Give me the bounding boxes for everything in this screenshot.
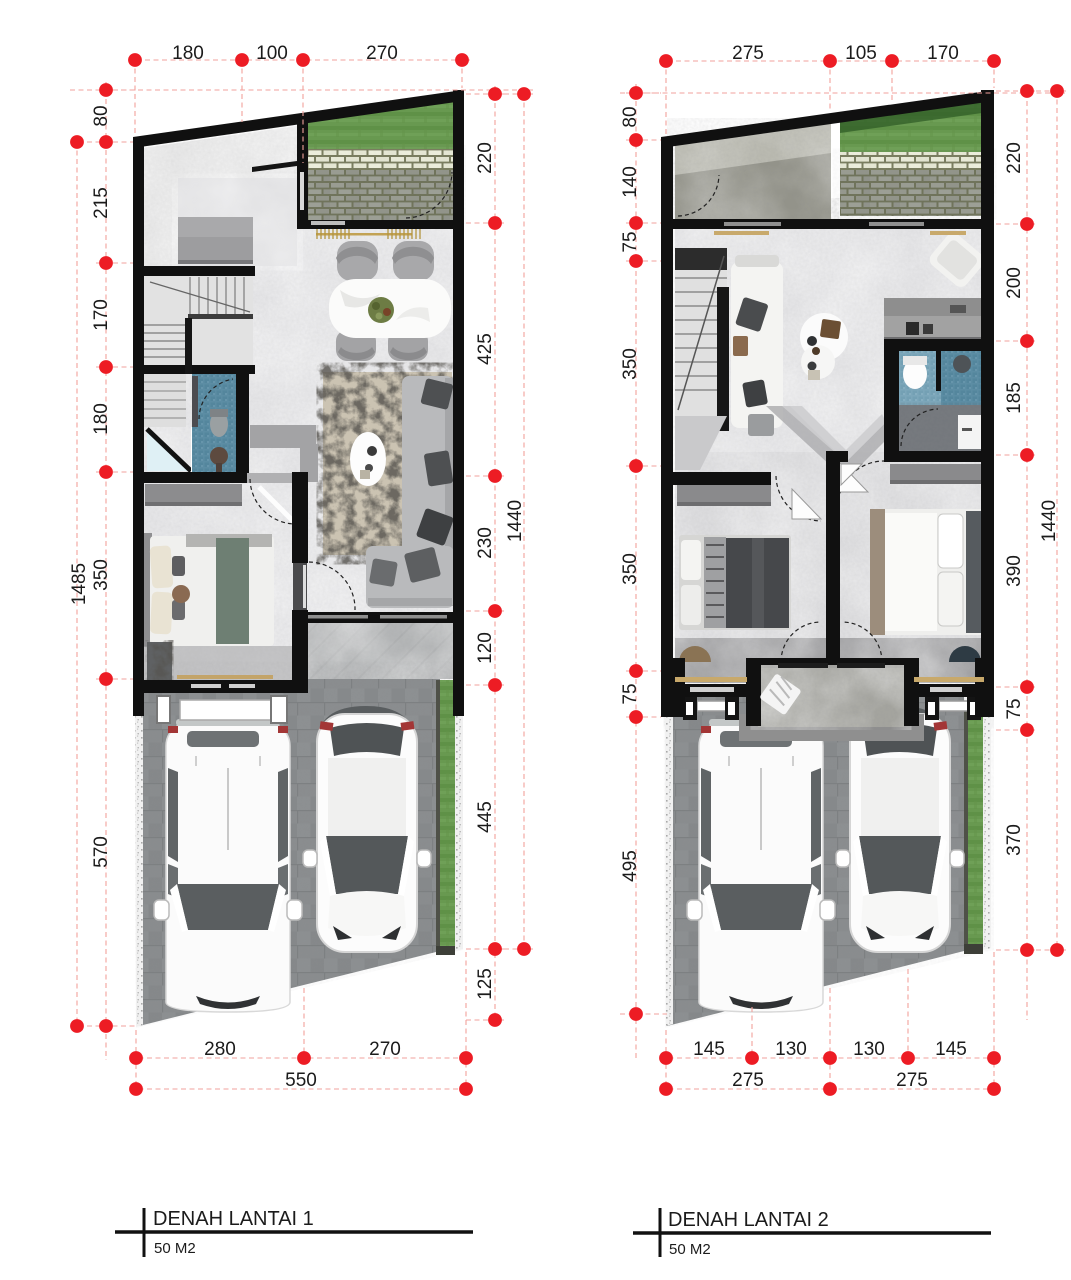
svg-text:125: 125 xyxy=(475,968,496,1000)
svg-text:170: 170 xyxy=(91,299,112,331)
svg-text:220: 220 xyxy=(475,142,496,174)
svg-text:80: 80 xyxy=(620,106,641,127)
svg-text:100: 100 xyxy=(256,43,288,64)
svg-text:350: 350 xyxy=(620,348,641,380)
svg-text:50 M2: 50 M2 xyxy=(669,1241,711,1258)
svg-text:200: 200 xyxy=(1004,267,1025,299)
svg-text:270: 270 xyxy=(369,1039,401,1060)
svg-text:DENAH LANTAI 1: DENAH LANTAI 1 xyxy=(153,1208,314,1230)
svg-text:140: 140 xyxy=(620,166,641,198)
svg-text:275: 275 xyxy=(732,1070,764,1091)
svg-text:145: 145 xyxy=(693,1039,725,1060)
svg-text:145: 145 xyxy=(935,1039,967,1060)
svg-text:75: 75 xyxy=(1004,698,1025,719)
svg-text:75: 75 xyxy=(620,683,641,704)
svg-text:120: 120 xyxy=(475,632,496,664)
svg-text:370: 370 xyxy=(1004,824,1025,856)
svg-text:170: 170 xyxy=(927,43,959,64)
svg-text:390: 390 xyxy=(1004,555,1025,587)
svg-text:130: 130 xyxy=(775,1039,807,1060)
svg-text:425: 425 xyxy=(475,333,496,365)
svg-text:DENAH LANTAI 2: DENAH LANTAI 2 xyxy=(668,1209,829,1231)
svg-text:350: 350 xyxy=(91,559,112,591)
svg-text:50 M2: 50 M2 xyxy=(154,1240,196,1257)
svg-text:220: 220 xyxy=(1004,142,1025,174)
svg-text:180: 180 xyxy=(91,403,112,435)
svg-text:570: 570 xyxy=(91,836,112,868)
svg-text:105: 105 xyxy=(845,43,877,64)
svg-text:445: 445 xyxy=(475,801,496,833)
svg-text:185: 185 xyxy=(1004,382,1025,414)
svg-text:275: 275 xyxy=(896,1070,928,1091)
svg-text:230: 230 xyxy=(475,527,496,559)
svg-text:1440: 1440 xyxy=(505,500,526,542)
svg-text:130: 130 xyxy=(853,1039,885,1060)
svg-text:270: 270 xyxy=(366,43,398,64)
svg-text:550: 550 xyxy=(285,1070,317,1091)
svg-text:1440: 1440 xyxy=(1039,500,1060,542)
svg-text:275: 275 xyxy=(732,43,764,64)
svg-text:215: 215 xyxy=(91,187,112,219)
svg-text:280: 280 xyxy=(204,1039,236,1060)
svg-text:75: 75 xyxy=(620,231,641,252)
svg-text:80: 80 xyxy=(91,105,112,126)
svg-text:350: 350 xyxy=(620,553,641,585)
svg-text:495: 495 xyxy=(620,850,641,882)
svg-text:1485: 1485 xyxy=(69,563,90,605)
svg-text:180: 180 xyxy=(172,43,204,64)
